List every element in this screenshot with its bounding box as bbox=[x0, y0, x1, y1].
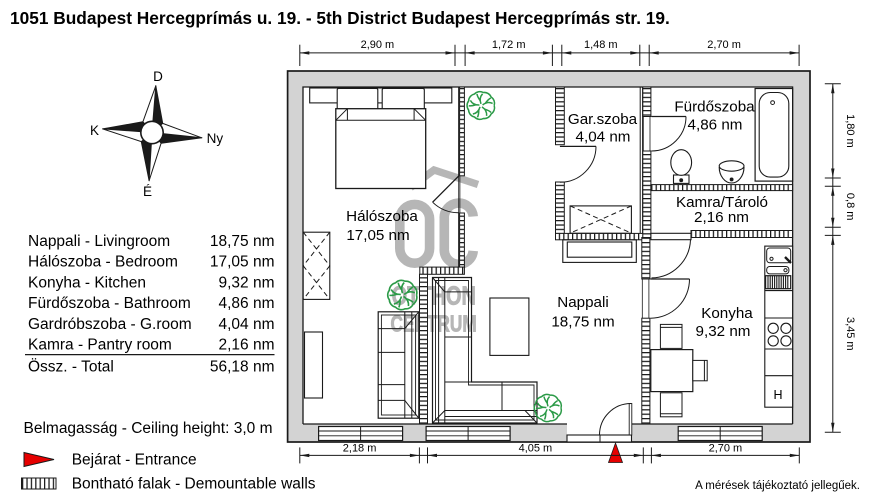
svg-text:OTTHON: OTTHON bbox=[392, 281, 476, 310]
svg-text:Ny: Ny bbox=[207, 131, 224, 146]
svg-text:4,86 nm: 4,86 nm bbox=[688, 117, 743, 134]
svg-text:17,05 nm: 17,05 nm bbox=[346, 227, 409, 244]
svg-text:4,04 nm: 4,04 nm bbox=[576, 129, 631, 146]
svg-text:2,90 m: 2,90 m bbox=[361, 39, 395, 51]
svg-text:Össz. - Total: Össz. - Total bbox=[28, 357, 114, 375]
svg-text:Konyha: Konyha bbox=[701, 305, 753, 322]
svg-text:0,8 m: 0,8 m bbox=[844, 193, 856, 221]
svg-text:2,16 nm: 2,16 nm bbox=[694, 209, 749, 226]
svg-text:2,70 m: 2,70 m bbox=[707, 39, 741, 51]
svg-text:Bejárat - Entrance: Bejárat - Entrance bbox=[72, 452, 197, 469]
svg-text:2,16 nm: 2,16 nm bbox=[218, 337, 274, 354]
svg-text:9,32 nm: 9,32 nm bbox=[218, 274, 274, 291]
svg-text:D: D bbox=[153, 69, 163, 84]
svg-text:Fürdőszoba - Bathroom: Fürdőszoba - Bathroom bbox=[28, 295, 191, 312]
svg-text:Bontható falak - Demountable w: Bontható falak - Demountable walls bbox=[72, 476, 316, 493]
svg-text:Gar.szoba: Gar.szoba bbox=[568, 111, 638, 128]
svg-text:É: É bbox=[143, 184, 152, 199]
svg-text:Hálószoba: Hálószoba bbox=[346, 208, 418, 225]
svg-text:1,48 m: 1,48 m bbox=[584, 39, 618, 51]
svg-text:Belmagasság - Ceiling height:: Belmagasság - Ceiling height: 3,0 m bbox=[24, 420, 273, 437]
svg-text:Kamra - Pantry room: Kamra - Pantry room bbox=[28, 337, 172, 354]
svg-text:4,86 nm: 4,86 nm bbox=[218, 295, 274, 312]
svg-text:1051 Budapest Hercegprímás u.: 1051 Budapest Hercegprímás u. 19. - 5th … bbox=[10, 8, 670, 28]
svg-text:18,75 nm: 18,75 nm bbox=[551, 314, 614, 331]
svg-text:4,05 m: 4,05 m bbox=[519, 443, 553, 455]
svg-text:A mérések tájékoztató jellegűe: A mérések tájékoztató jellegűek. bbox=[695, 480, 860, 492]
svg-text:1,72 m: 1,72 m bbox=[492, 39, 526, 51]
svg-text:3,45 m: 3,45 m bbox=[844, 317, 856, 351]
svg-text:H: H bbox=[773, 388, 782, 402]
svg-text:Nappali - Livingroom: Nappali - Livingroom bbox=[28, 233, 170, 250]
svg-text:17,05 nm: 17,05 nm bbox=[210, 254, 275, 271]
svg-text:1,80 m: 1,80 m bbox=[844, 114, 856, 148]
svg-text:K: K bbox=[90, 123, 99, 138]
svg-text:9,32 nm: 9,32 nm bbox=[696, 323, 751, 340]
svg-text:2,70 m: 2,70 m bbox=[709, 443, 743, 455]
svg-text:Hálószoba - Bedroom: Hálószoba - Bedroom bbox=[28, 254, 178, 271]
svg-text:Nappali: Nappali bbox=[557, 294, 609, 311]
svg-text:56,18 nm: 56,18 nm bbox=[210, 358, 275, 375]
svg-text:CENTRUM: CENTRUM bbox=[391, 312, 477, 337]
svg-text:Gardróbszoba - G.room: Gardróbszoba - G.room bbox=[28, 316, 192, 333]
svg-text:2,18 m: 2,18 m bbox=[343, 443, 377, 455]
svg-text:Konyha - Kitchen: Konyha - Kitchen bbox=[28, 274, 146, 291]
svg-text:18,75 nm: 18,75 nm bbox=[210, 233, 275, 250]
svg-text:4,04 nm: 4,04 nm bbox=[218, 316, 274, 333]
svg-text:Fürdőszoba: Fürdőszoba bbox=[674, 99, 755, 116]
